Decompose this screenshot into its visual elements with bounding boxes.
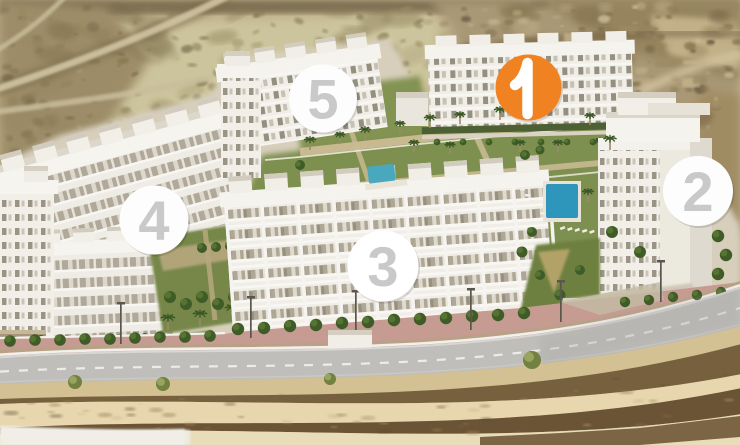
svg-text:2: 2 <box>682 160 713 223</box>
svg-text:3: 3 <box>367 235 398 298</box>
svg-text:5: 5 <box>307 68 338 131</box>
svg-text:4: 4 <box>138 189 169 252</box>
